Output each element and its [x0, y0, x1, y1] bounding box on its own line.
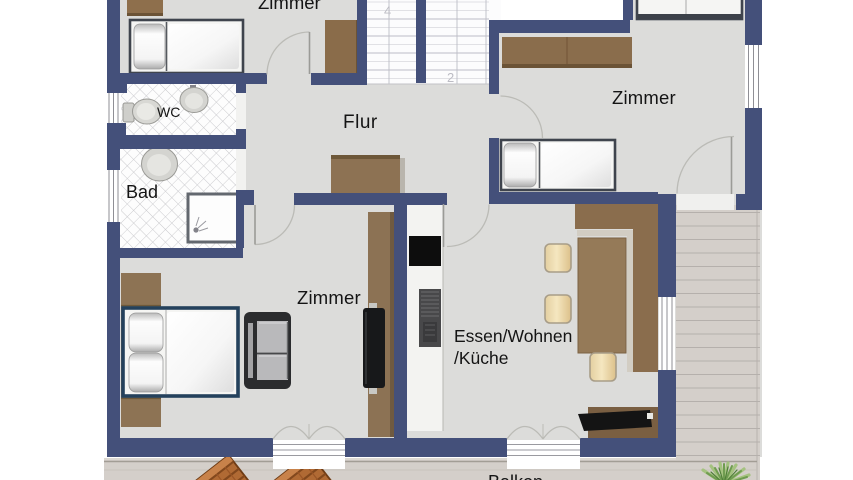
- svg-text:Zimmer: Zimmer: [612, 87, 676, 108]
- svg-text:Zimmer: Zimmer: [258, 0, 321, 13]
- svg-text:WC: WC: [157, 104, 180, 120]
- svg-text:4: 4: [384, 4, 391, 19]
- svg-text:Balkon: Balkon: [488, 472, 543, 480]
- svg-text:/Küche: /Küche: [454, 348, 508, 368]
- svg-text:Zimmer: Zimmer: [297, 287, 361, 308]
- svg-text:Flur: Flur: [343, 112, 378, 133]
- svg-text:Essen/Wohnen: Essen/Wohnen: [454, 326, 572, 346]
- svg-text:Bad: Bad: [126, 182, 158, 202]
- svg-text:2: 2: [447, 70, 454, 85]
